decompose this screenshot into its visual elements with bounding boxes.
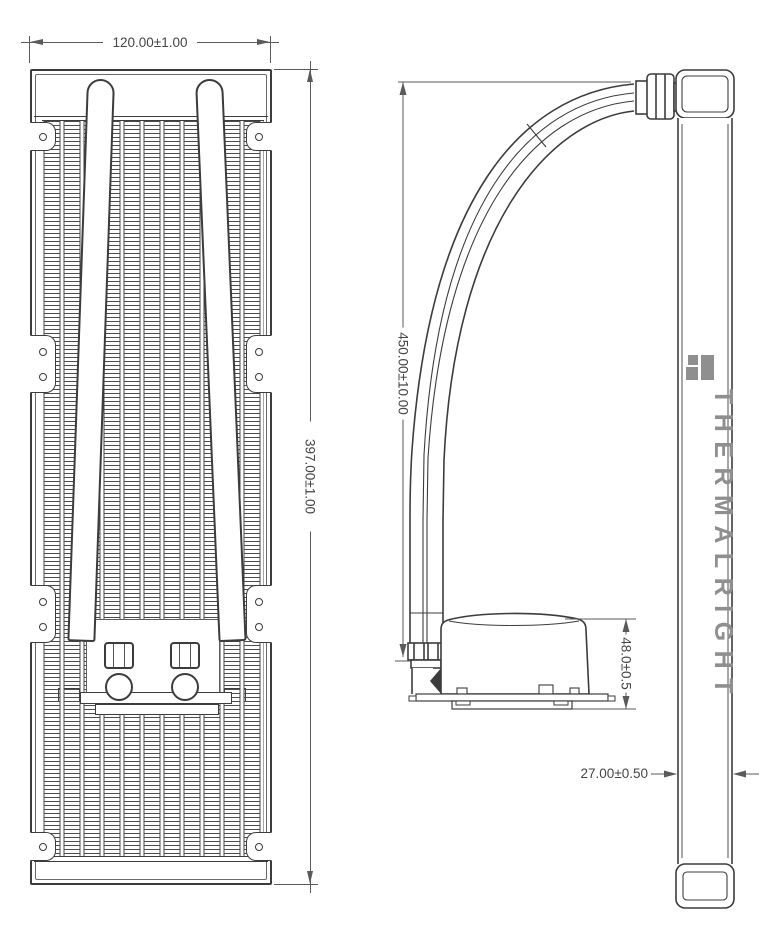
mounting-tab	[30, 122, 56, 151]
mounting-tab	[30, 832, 56, 861]
dim-pump-height-label: 48.0±0.5	[619, 635, 634, 693]
top-tank-line	[34, 116, 268, 117]
dim-tube-length-label: 450.00±10.00	[396, 328, 411, 420]
port-plate-upper	[80, 692, 232, 704]
fitting-elbow-left	[105, 673, 133, 701]
fitting-elbow-right	[171, 673, 199, 701]
mounting-tab	[246, 122, 272, 151]
brand-text: THERMALRIGHT	[709, 389, 737, 703]
mounting-tab	[30, 585, 56, 643]
mounting-tab	[246, 832, 272, 861]
screw-hole	[39, 598, 47, 606]
dim-radiator-thickness-label: 27.00±0.50	[556, 766, 648, 781]
port-plate-lower	[95, 704, 219, 715]
screw-hole	[255, 623, 263, 631]
dim-radiator-width-label: 120.00±1.00	[103, 35, 197, 50]
bottom-tank-line	[34, 861, 268, 862]
screw-hole	[255, 373, 263, 381]
compression-nut-left	[104, 642, 134, 669]
screw-hole	[39, 843, 47, 851]
screw-hole	[255, 843, 263, 851]
front-view	[30, 69, 272, 885]
mounting-tab	[246, 585, 272, 643]
screw-hole	[255, 598, 263, 606]
compression-nut-right	[170, 642, 200, 669]
screw-hole	[39, 623, 47, 631]
screw-hole	[39, 133, 47, 141]
mounting-tab	[246, 335, 272, 393]
screw-hole	[39, 348, 47, 356]
pump-base-plate	[416, 694, 608, 701]
screw-hole	[255, 348, 263, 356]
mounting-tab	[30, 335, 56, 393]
screw-hole	[39, 373, 47, 381]
technical-drawing-canvas: THERMALRIGHT	[0, 0, 768, 931]
dim-radiator-length-label: 397.00±1.00	[303, 422, 318, 532]
top-fitting	[636, 74, 679, 119]
screw-hole	[255, 133, 263, 141]
